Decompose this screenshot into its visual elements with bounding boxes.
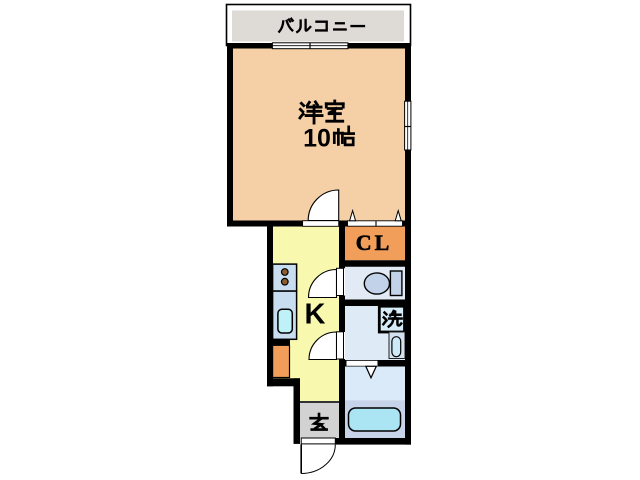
svg-text:CL: CL [356, 230, 393, 255]
svg-text:K: K [305, 299, 326, 331]
svg-text:10: 10 [303, 125, 331, 153]
